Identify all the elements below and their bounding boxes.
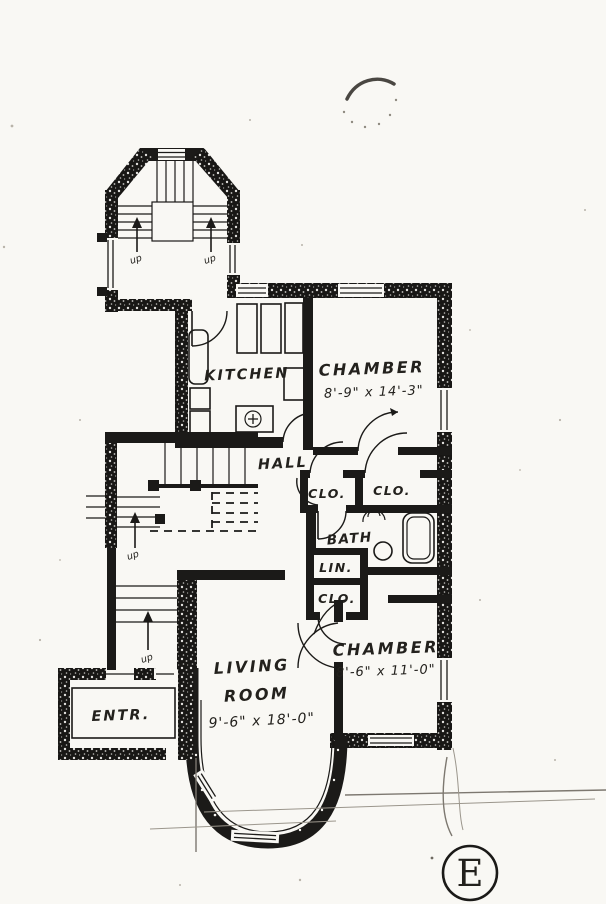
door-swing	[192, 311, 227, 346]
living-room: LIVING ROOM 9'-6" x 18'-0"	[177, 570, 341, 843]
chamber-bottom-label: CHAMBER	[332, 637, 439, 660]
sheet-mark-letter: E	[456, 852, 483, 895]
exterior-steps	[86, 496, 105, 518]
up-annotation: up	[203, 253, 218, 267]
chamber-top-dimensions: 8'-9" x 14'-3"	[324, 383, 424, 401]
newel-post	[190, 480, 201, 491]
window	[436, 658, 453, 702]
up-annotation: up	[126, 549, 141, 563]
stairhall-west-wall	[105, 432, 117, 548]
living-room-dimensions: 9'-6" x 18'-0"	[208, 710, 315, 732]
stairs-overhead-dashed	[150, 492, 260, 531]
chamber-bottom-dimensions: 8'-6" x 11'-0"	[336, 662, 436, 680]
bathtub	[403, 513, 434, 563]
window	[97, 233, 119, 296]
front-stairs: up	[116, 586, 177, 666]
stair-direction-arrow: up	[129, 217, 144, 267]
window	[226, 243, 241, 275]
window	[436, 388, 453, 432]
tower-top-opening	[158, 149, 185, 160]
stair-flight-upper	[165, 443, 245, 484]
living-west-wall	[177, 573, 197, 670]
paper-noise	[3, 119, 586, 886]
sheet-mark-stamp: E	[431, 846, 497, 900]
stair-rail	[150, 484, 258, 488]
window	[338, 284, 384, 297]
closets: CLO. CLO.	[300, 433, 452, 513]
stove	[236, 406, 273, 432]
living-room-label-2: ROOM	[224, 683, 290, 705]
stair-direction-arrow: up	[126, 512, 141, 563]
closet-b-label: CLO.	[373, 483, 411, 498]
stair-landing	[152, 202, 193, 241]
corridor-west-wall	[107, 548, 116, 670]
window	[154, 669, 176, 679]
closet-a-label: CLO.	[308, 486, 346, 501]
pencil-sketch-lines	[150, 748, 606, 852]
stairhall-north-wall	[105, 432, 258, 443]
chamber-bottom: CHAMBER 8'-6" x 11'-0"	[298, 595, 452, 740]
newel-post	[148, 480, 159, 491]
bath-south-wall	[363, 567, 452, 575]
up-annotation: up	[140, 652, 155, 666]
toilet	[374, 542, 392, 560]
window	[368, 735, 414, 746]
living-north-wall	[177, 570, 285, 580]
bath-label: BATH	[326, 529, 373, 548]
kitchen: KITCHEN	[175, 298, 313, 450]
stair-direction-arrow: up	[203, 217, 218, 267]
chamber-top-label: CHAMBER	[318, 357, 425, 380]
floor-plan-drawing: up up	[0, 0, 606, 904]
entrance-label: ENTR.	[91, 707, 150, 725]
entrance-vestibule: ENTR.	[58, 668, 194, 760]
stair-direction-arrow: up	[140, 611, 155, 666]
window	[236, 284, 268, 297]
chamber-top-south-wall	[398, 447, 452, 455]
newel-post	[155, 514, 165, 524]
floor-plan-sheet: up up	[0, 0, 606, 904]
kitchen-west-wall	[175, 299, 188, 443]
chamber-bottom-west-wall	[334, 600, 343, 622]
stair-tower: up up	[97, 148, 241, 346]
kitchen-label: KITCHEN	[204, 366, 290, 385]
pencil-circle-artifact	[343, 79, 397, 128]
up-annotation: up	[129, 253, 144, 267]
linen-label: LIN.	[319, 560, 353, 575]
living-room-label-1: LIVING	[213, 655, 290, 678]
chamber-bottom-north-wall	[388, 595, 452, 603]
